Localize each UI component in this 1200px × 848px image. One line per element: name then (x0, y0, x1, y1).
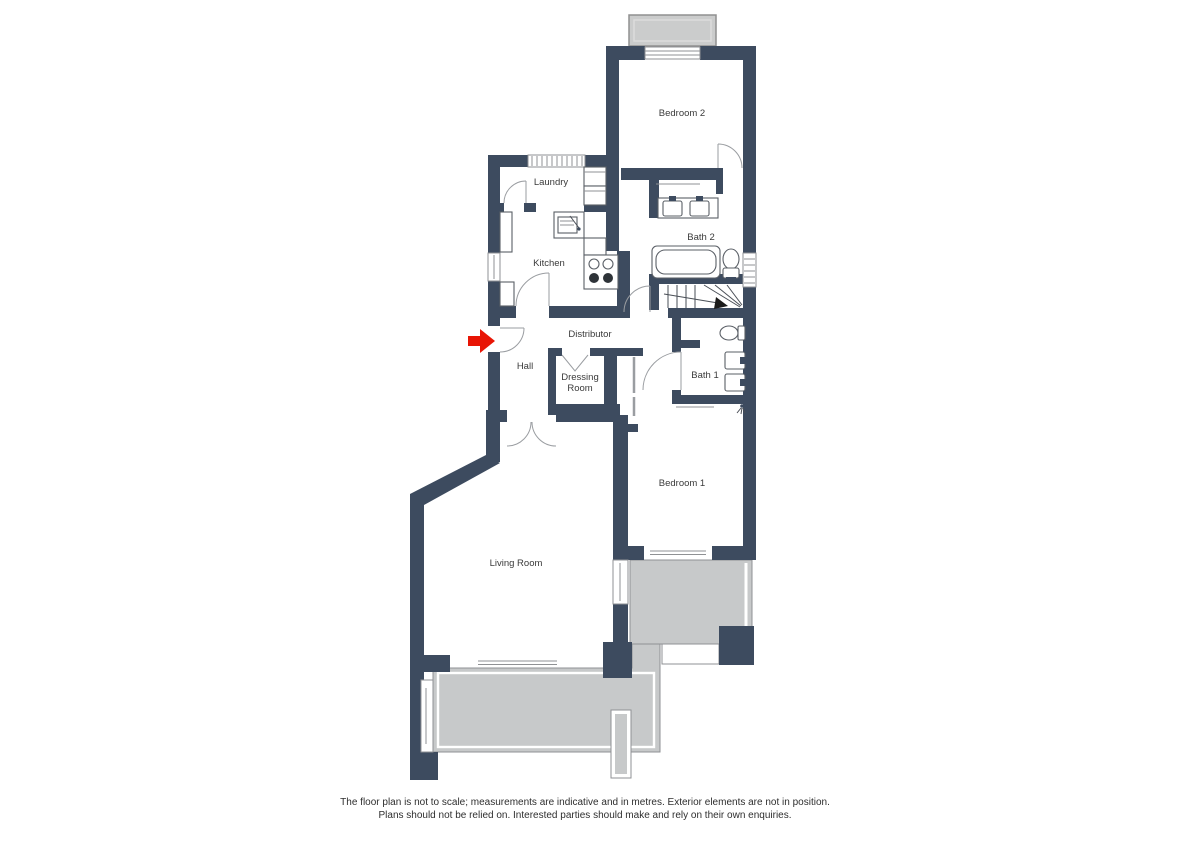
label-dressing-1: Dressing (561, 372, 599, 383)
label-bath2: Bath 2 (687, 232, 714, 243)
wall-segment (716, 168, 723, 194)
wall-segment (712, 546, 756, 560)
wall-segment (743, 46, 756, 253)
door-bedroom2 (718, 144, 742, 168)
wall-segment (672, 395, 743, 404)
dryer-icon (584, 186, 606, 205)
wall-segment (606, 46, 619, 251)
label-bedroom1: Bedroom 1 (659, 478, 705, 489)
disclaimer-text: The floor plan is not to scale; measurem… (340, 797, 830, 821)
stairs (664, 285, 742, 309)
washer-icon (584, 167, 606, 186)
wall-segment (604, 348, 617, 408)
wall-segment (488, 306, 516, 318)
door-entrance (500, 328, 524, 352)
wall-segment (621, 168, 717, 180)
label-bedroom2: Bedroom 2 (659, 108, 705, 119)
label-bath1: Bath 1 (691, 370, 718, 381)
label-distributor: Distributor (568, 329, 611, 340)
wall-segment (488, 203, 504, 212)
wall-segment (488, 281, 500, 326)
disclaimer-line-1: The floor plan is not to scale; measurem… (340, 797, 830, 808)
window-bath2 (743, 253, 756, 287)
door-kitchen (516, 273, 549, 306)
sliding-door-living-room (478, 661, 557, 665)
wall-segment (617, 251, 630, 318)
wall-segment (668, 308, 743, 318)
faucet-icon (669, 196, 676, 201)
toilet-icon-bath2 (723, 249, 739, 281)
sink-icon (690, 201, 709, 216)
wall-segment (424, 655, 450, 672)
wall-segment (619, 546, 644, 560)
floor-plan-drawing: Bedroom 2 Laundry Kitchen Bath 2 Distrib… (0, 0, 1200, 848)
wall-segment (424, 752, 438, 780)
entrance-arrow-icon (468, 329, 495, 353)
kitchen-counter (584, 238, 606, 255)
disclaimer-line-2: Plans should not be relied on. Intereste… (378, 810, 791, 821)
faucet-icon (740, 379, 746, 386)
wall-segment (613, 415, 628, 560)
window-terrace-left (421, 680, 433, 752)
wall-segment (618, 424, 638, 432)
kitchen-counter (500, 282, 514, 306)
label-kitchen: Kitchen (533, 258, 565, 269)
sliding-door-bedroom1 (650, 551, 706, 555)
window-bedroom2 (645, 47, 700, 59)
floor-plan-page: Bedroom 2 Laundry Kitchen Bath 2 Distrib… (0, 0, 1200, 848)
wall-segment (603, 642, 632, 678)
terrace-pillar (719, 626, 754, 665)
wall-segment (486, 412, 500, 462)
label-hall: Hall (517, 361, 533, 372)
terrace-step-strip-fill (615, 714, 627, 774)
faucet-icon (696, 196, 703, 201)
door-laundry (504, 181, 526, 203)
toilet-icon-bath1 (720, 326, 745, 340)
wall-segment (524, 203, 536, 212)
kitchen-counter (500, 212, 512, 252)
faucet-icon (740, 357, 746, 364)
stairs-direction-line (664, 294, 718, 303)
wall-segment (681, 340, 700, 348)
label-living-room: Living Room (490, 558, 543, 569)
wall-segment (585, 155, 607, 167)
kitchen-counter (584, 255, 618, 289)
label-laundry: Laundry (534, 177, 569, 188)
wall-segment (488, 352, 500, 420)
label-dressing-2: Room (567, 383, 592, 394)
door-dressing-bifold (562, 355, 588, 371)
wall-segment (613, 604, 628, 644)
wall-segment (672, 318, 681, 352)
wall-segment (549, 306, 618, 318)
door-living-right (532, 422, 556, 446)
sink-icon (663, 201, 682, 216)
wall-segment (548, 348, 556, 412)
terrace-railing-channel (662, 644, 719, 664)
door-bath1 (643, 352, 681, 390)
door-living-left (507, 422, 531, 446)
